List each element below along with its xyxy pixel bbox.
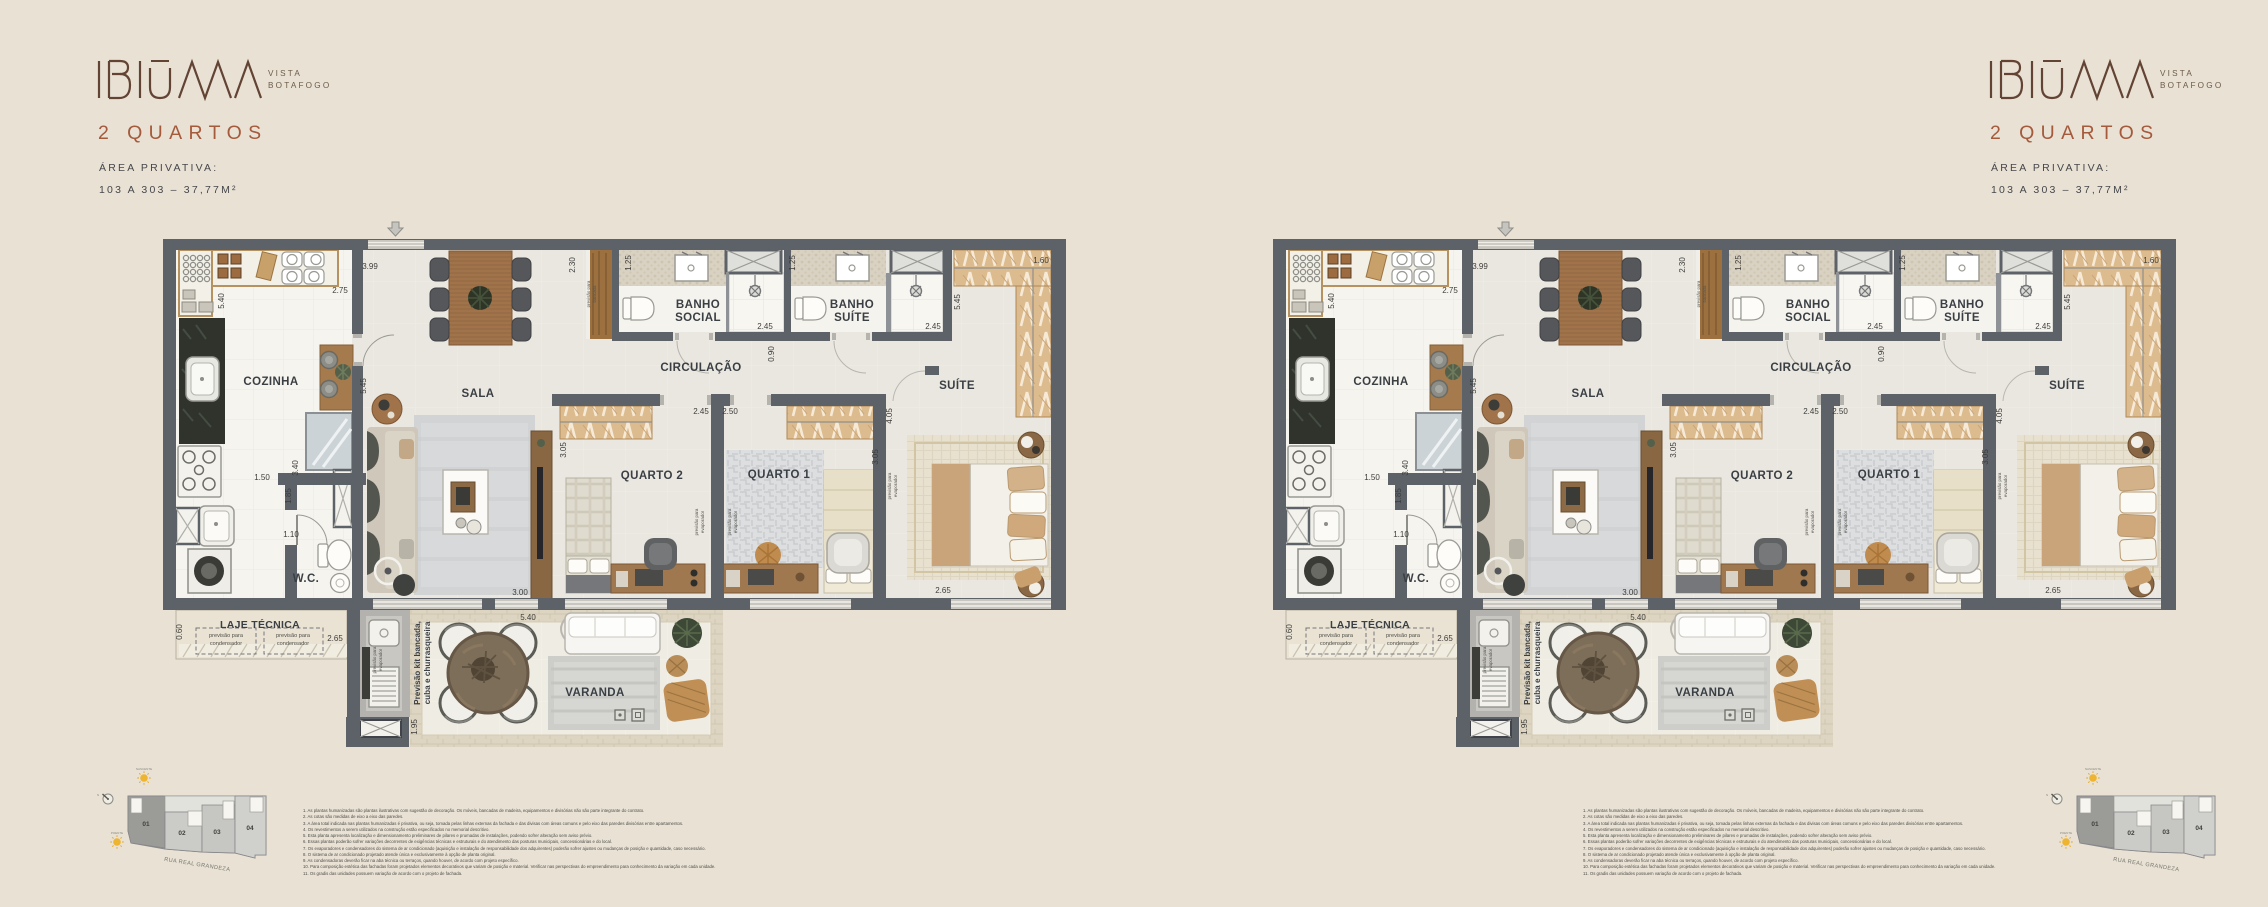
svg-text:BOTAFOGO: BOTAFOGO	[2160, 81, 2223, 90]
svg-text:VISTA: VISTA	[2160, 69, 2194, 78]
svg-text:BOTAFOGO: BOTAFOGO	[268, 81, 331, 90]
svg-text:VISTA: VISTA	[268, 69, 302, 78]
